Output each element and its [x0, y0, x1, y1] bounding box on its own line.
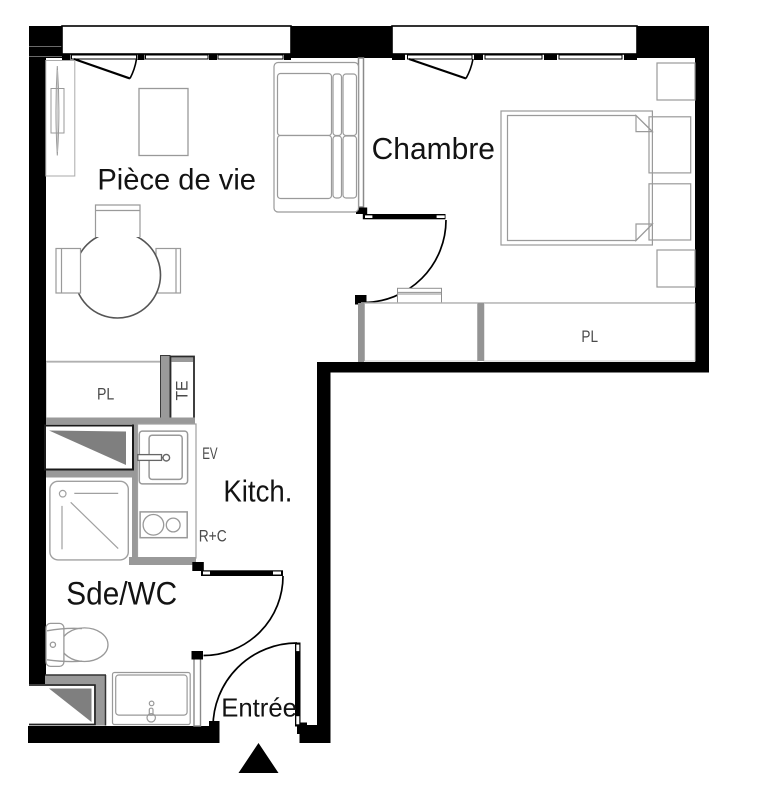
svg-text:Sde/WC: Sde/WC	[66, 575, 177, 611]
svg-text:Kitch.: Kitch.	[223, 474, 292, 508]
svg-text:R+C: R+C	[199, 527, 227, 545]
svg-text:TE: TE	[173, 381, 192, 401]
svg-text:Pièce de vie: Pièce de vie	[97, 164, 256, 197]
svg-text:PL: PL	[97, 384, 114, 403]
svg-text:Entrée: Entrée	[221, 692, 297, 722]
svg-text:EV: EV	[202, 445, 217, 463]
svg-text:PL: PL	[581, 327, 598, 346]
svg-text:Chambre: Chambre	[372, 131, 495, 166]
